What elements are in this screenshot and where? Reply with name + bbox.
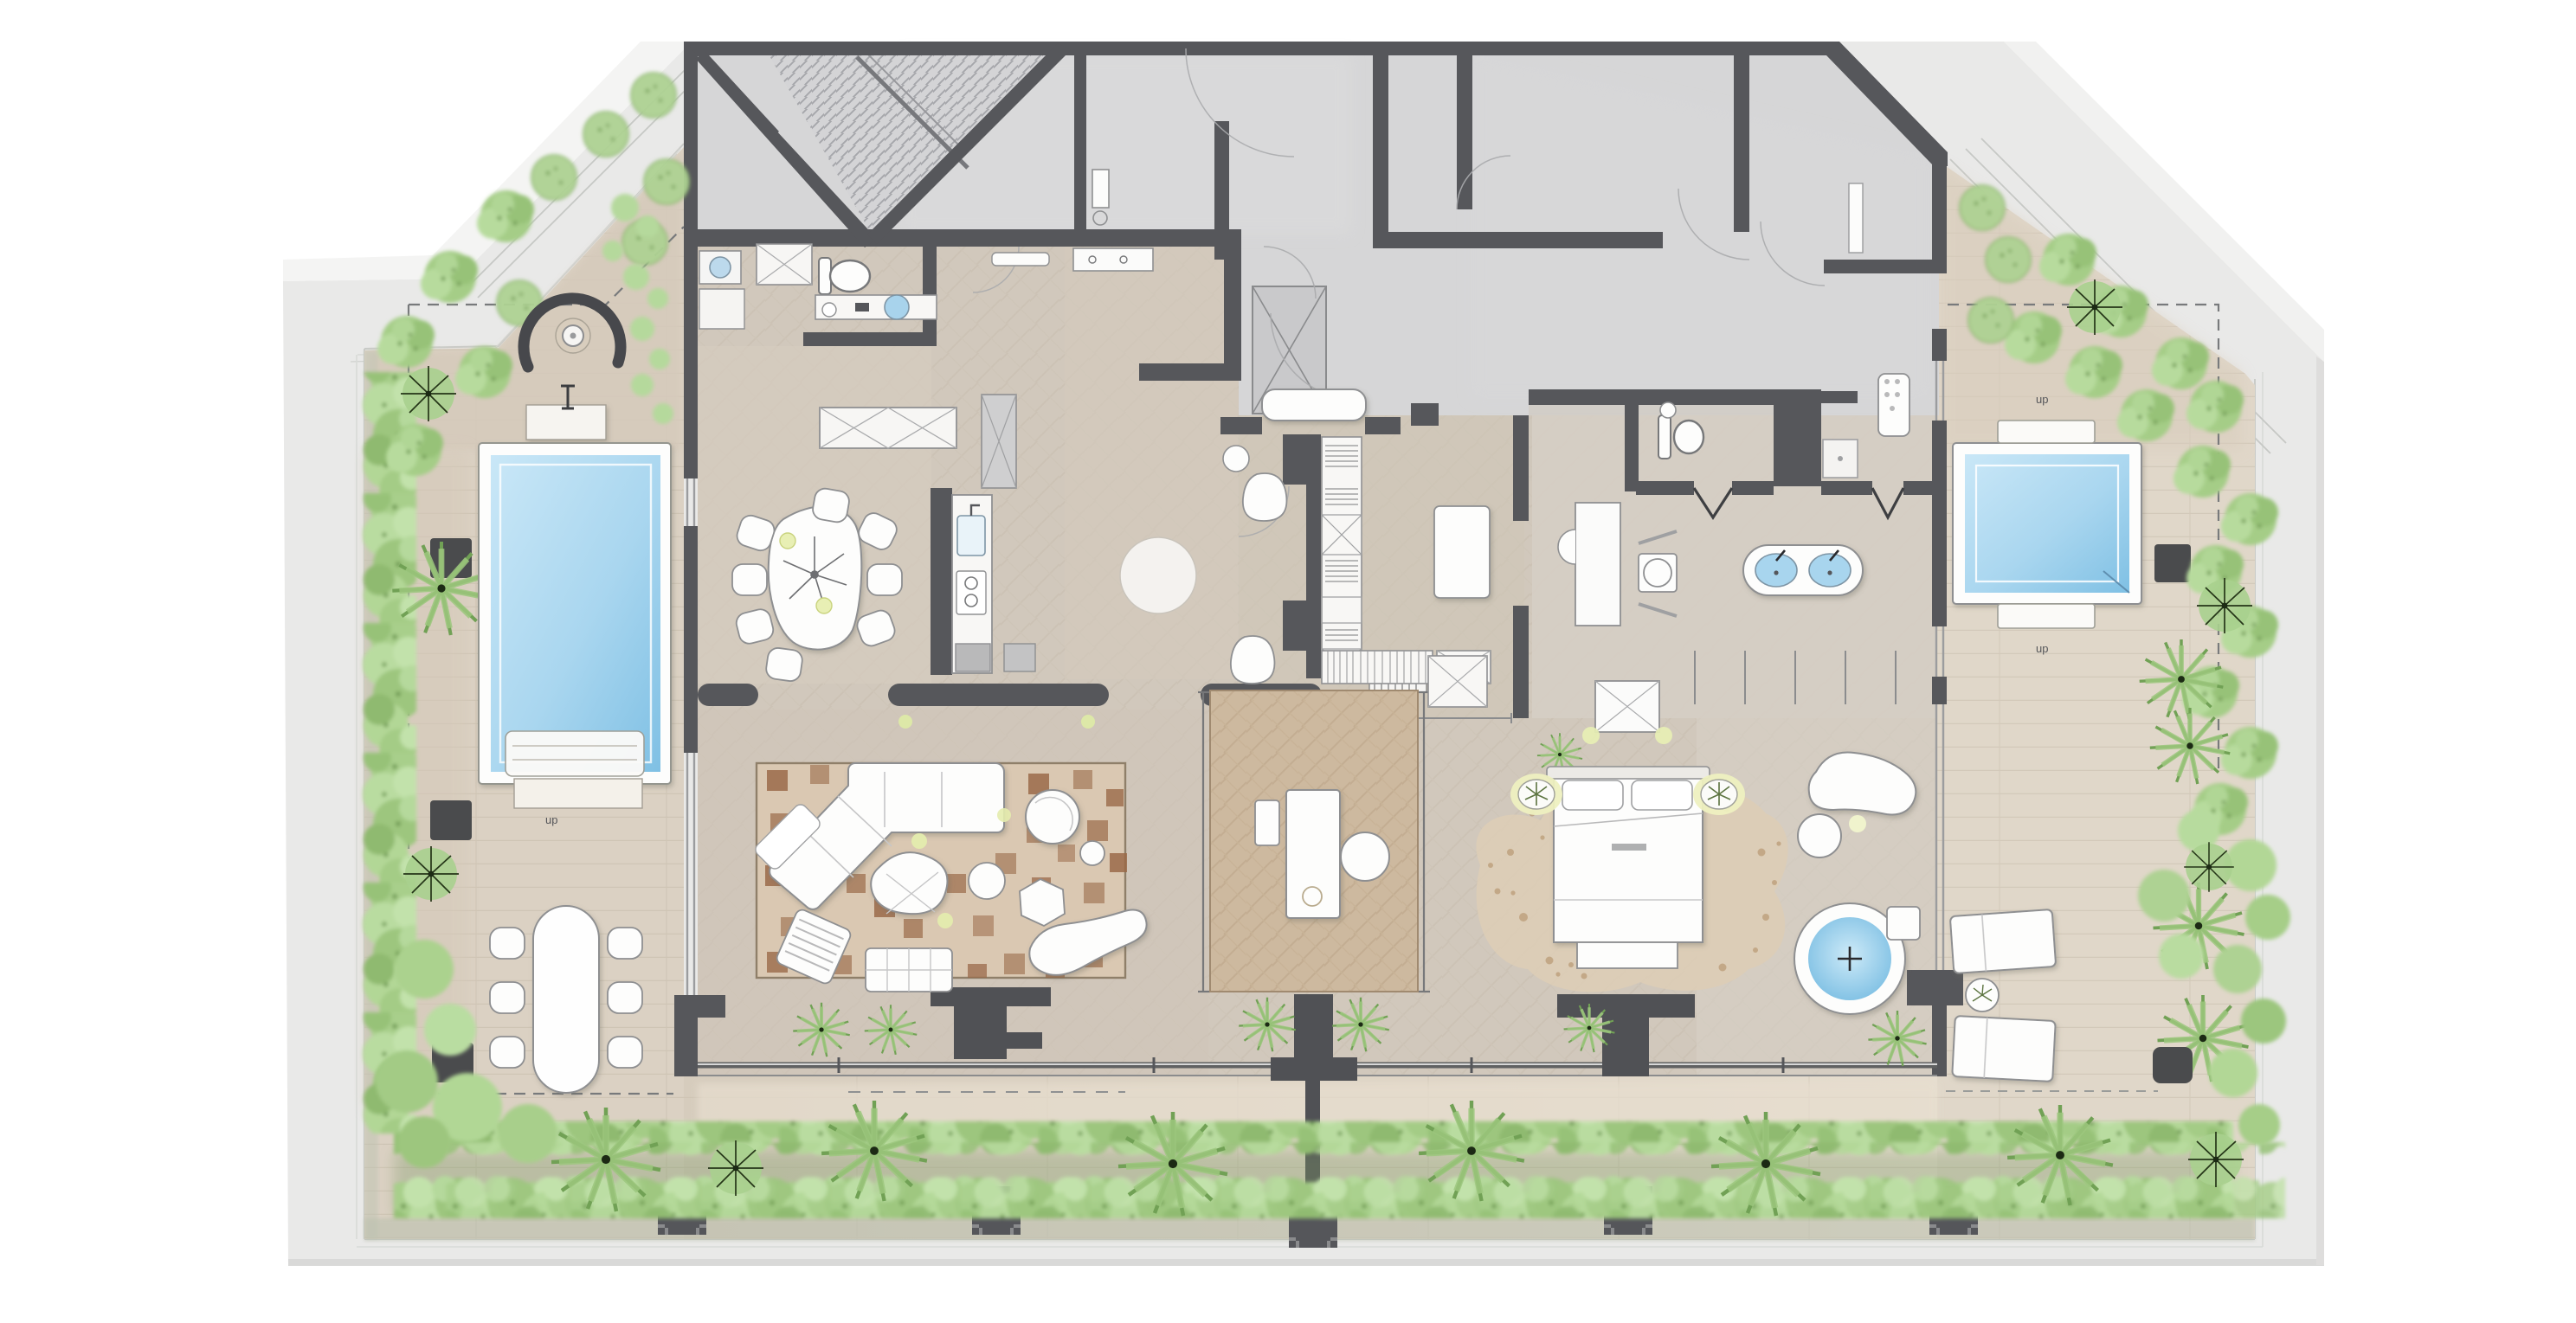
svg-text:up: up	[545, 813, 557, 826]
svg-text:up: up	[2036, 642, 2048, 655]
svg-text:up: up	[2036, 393, 2048, 406]
